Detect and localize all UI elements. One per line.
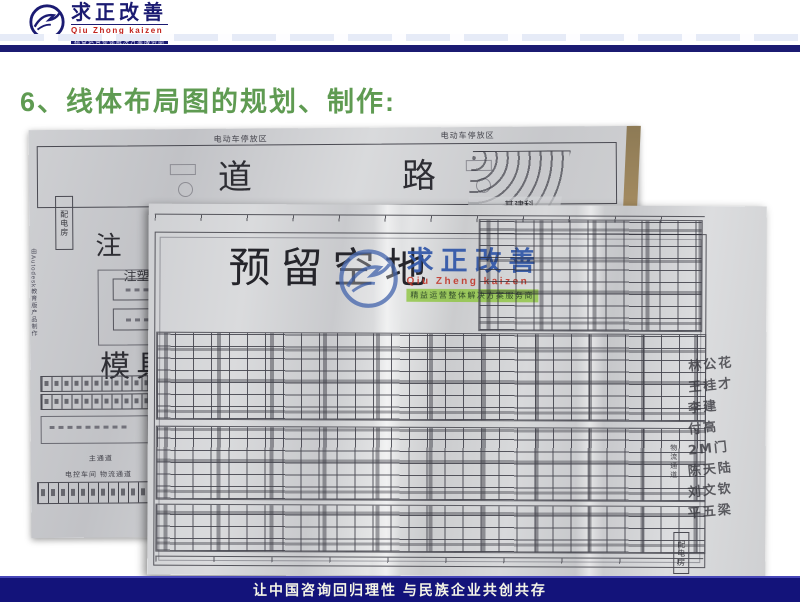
header-rule [0,44,800,52]
overlay-blueprint-photo: 预留空地 求正改善 Qiu Zheng kaizen 精益运营整体解决方案服务商… [147,204,767,578]
machine-row-frame [41,415,149,444]
power-room-box: 配电房 [55,196,73,250]
parking-area-label: 电动车停放区 [214,133,268,144]
power-room-box-overlay: 配电房 [673,532,689,574]
illegible-text [50,425,130,429]
workstation-strip [37,481,149,504]
watermark-logo-icon [336,246,400,310]
blueprint-band-top-right [478,219,702,332]
page-title: 6、线体布局图的规划、制作: [20,80,396,119]
header-light-strip [0,34,800,41]
handwritten-notes: 林公花 王桂才 李建 付高 2M门 陈天陆 刘文钦 平五梁 [687,352,760,518]
injection-area-char: 注 [95,225,121,262]
aisle-label: 主通道 [89,454,113,464]
table-edge [623,126,641,212]
workstation-strip [40,393,148,410]
layout-photo-collage: 电动车停放区 电动车停放区 道路 配电房 由Autodesk教育版产品制作 注 … [28,126,772,578]
brand-name: 求正改善 [71,3,168,23]
road-marking [170,164,196,175]
blueprint-band-2 [156,426,706,502]
workshop-label: 电控车间 物流通道 [65,469,132,479]
autodesk-education-note: 由Autodesk教育版产品制作 [28,248,38,337]
footer-slogan: 让中国咨询回归理性 与民族企业共创共存 [253,580,547,600]
workstation-strip [40,375,148,392]
road-marking [178,182,193,197]
logistics-label: 物流通道 [668,444,678,480]
footer: 让中国咨询回归理性 与民族企业共创共存 [0,576,800,602]
parking-area-label: 电动车停放区 [441,130,495,141]
blueprint-band-3 [155,504,705,554]
blueprint-band-1 [156,332,706,422]
